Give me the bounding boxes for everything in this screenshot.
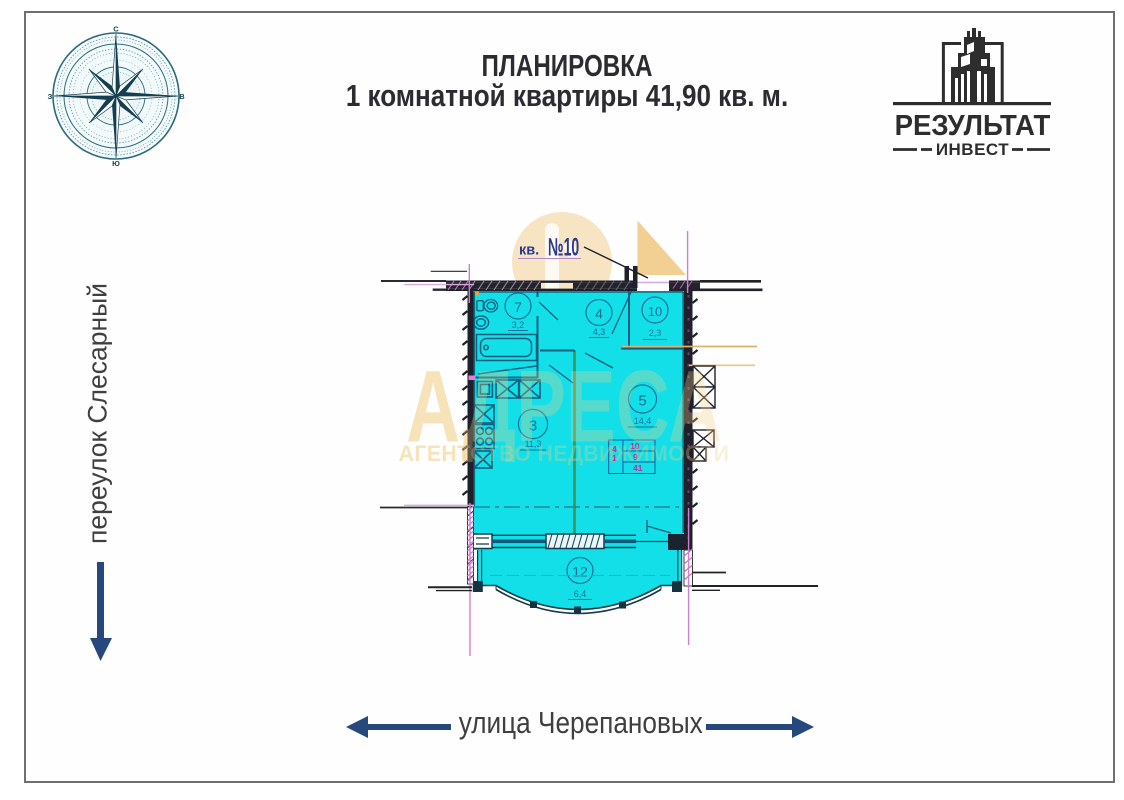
- svg-text:10: 10: [648, 304, 662, 319]
- svg-text:4: 4: [595, 306, 603, 322]
- svg-text:№10: №10: [548, 235, 579, 262]
- svg-text:12: 12: [572, 564, 588, 580]
- svg-text:2,3: 2,3: [649, 328, 662, 338]
- svg-text:АГЕНТСТВО НЕДВИЖИМОСТИ: АГЕНТСТВО НЕДВИЖИМОСТИ: [399, 440, 730, 466]
- svg-text:6,4: 6,4: [574, 589, 587, 599]
- svg-text:кв.: кв.: [519, 243, 539, 259]
- svg-text:4,3: 4,3: [593, 327, 606, 337]
- svg-text:3,2: 3,2: [512, 320, 525, 330]
- svg-text:7: 7: [514, 299, 522, 315]
